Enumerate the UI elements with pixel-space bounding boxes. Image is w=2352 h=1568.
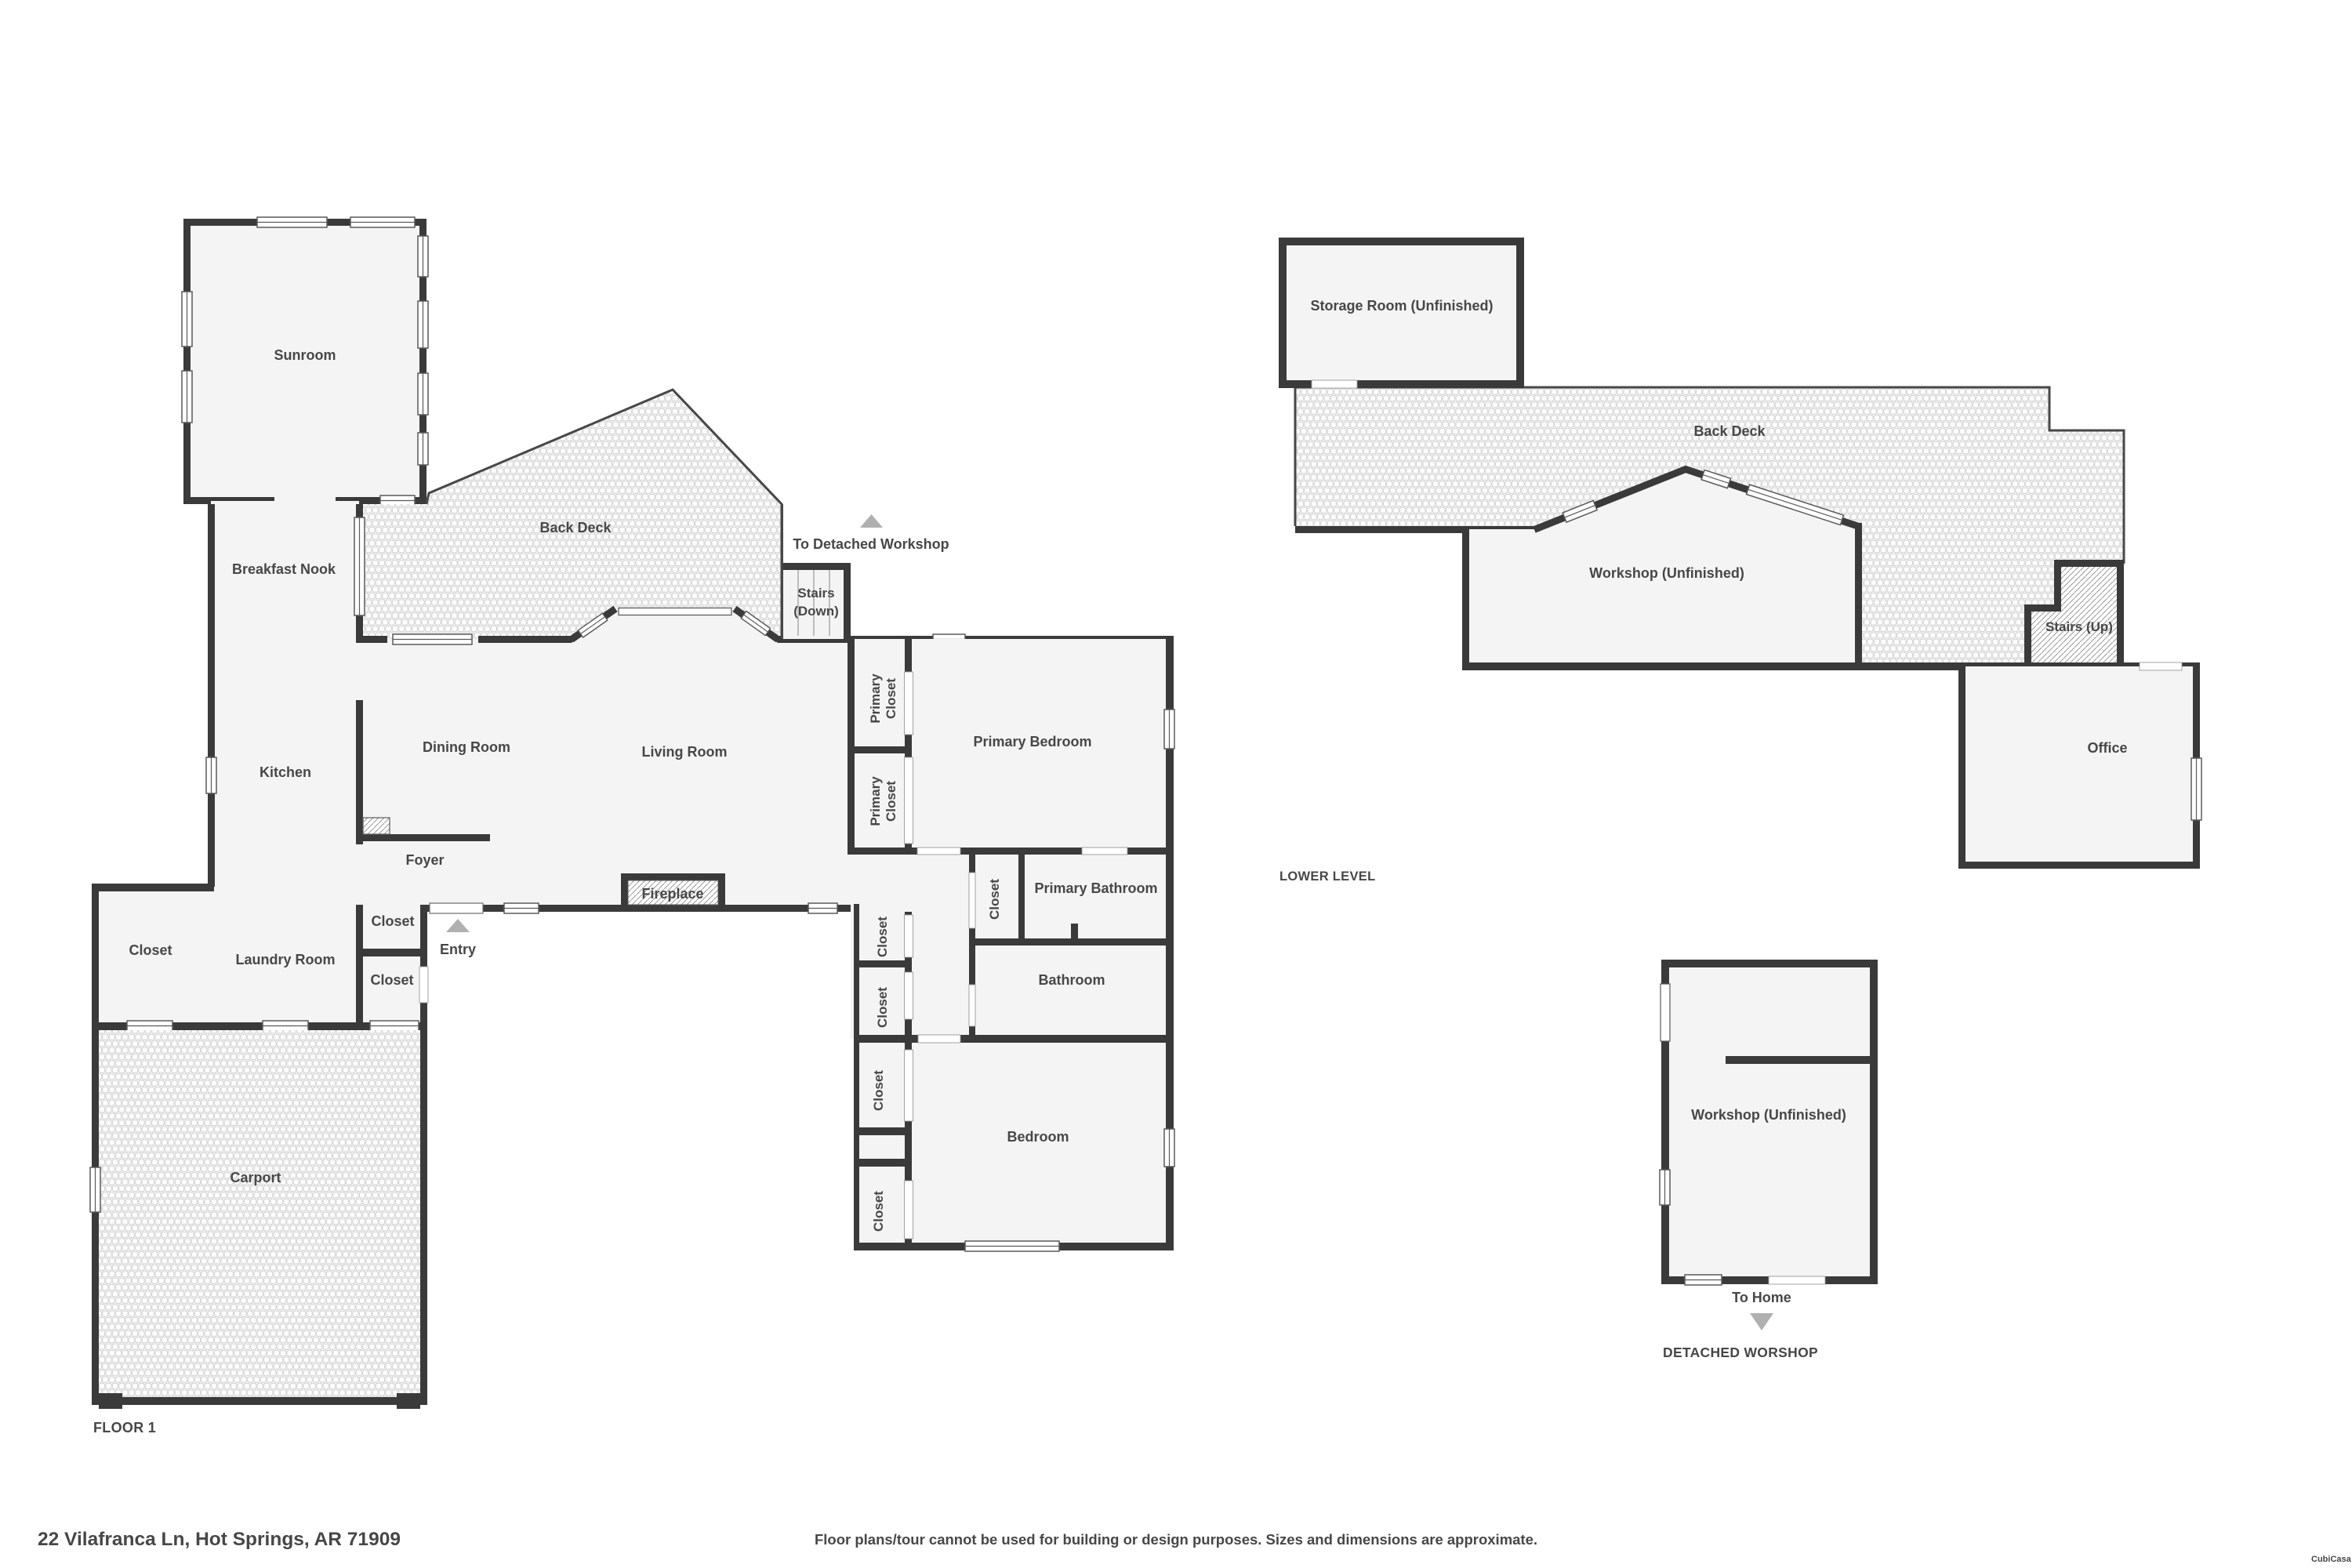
svg-text:Primary: Primary	[868, 673, 883, 724]
svg-text:Stairs (Up): Stairs (Up)	[2045, 619, 2113, 634]
svg-text:CubiCasa: CubiCasa	[2311, 1555, 2352, 1564]
svg-text:Foyer: Foyer	[405, 852, 444, 868]
svg-text:To Detached Workshop: To Detached Workshop	[793, 536, 949, 552]
svg-text:DETACHED WORSHOP: DETACHED WORSHOP	[1663, 1345, 1818, 1360]
svg-text:Back Deck: Back Deck	[1693, 423, 1766, 439]
svg-text:FLOOR 1: FLOOR 1	[93, 1420, 156, 1436]
svg-text:To Home: To Home	[1732, 1290, 1791, 1305]
svg-text:Closet: Closet	[129, 942, 172, 958]
svg-text:Closet: Closet	[875, 916, 890, 957]
svg-text:Back Deck: Back Deck	[539, 520, 612, 535]
svg-text:Closet: Closet	[987, 879, 1002, 920]
svg-text:Laundry Room: Laundry Room	[235, 952, 335, 967]
svg-text:Dining Room: Dining Room	[423, 739, 510, 755]
svg-text:22 Vilafranca Ln, Hot Springs,: 22 Vilafranca Ln, Hot Springs, AR 71909	[38, 1529, 401, 1550]
svg-text:Carport: Carport	[230, 1170, 281, 1185]
svg-text:Kitchen: Kitchen	[260, 764, 311, 780]
svg-text:Closet: Closet	[371, 913, 414, 929]
svg-text:Closet: Closet	[875, 987, 890, 1028]
svg-text:Living Room: Living Room	[642, 744, 728, 760]
svg-text:Entry: Entry	[440, 942, 476, 957]
svg-text:Stairs: Stairs	[797, 586, 834, 601]
svg-text:(Down): (Down)	[793, 604, 839, 619]
svg-text:Floor plans/tour cannot be use: Floor plans/tour cannot be used for buil…	[815, 1531, 1537, 1548]
svg-text:Closet: Closet	[884, 678, 898, 719]
svg-text:Bedroom: Bedroom	[1007, 1129, 1069, 1145]
svg-text:Closet: Closet	[884, 781, 898, 822]
svg-text:Closet: Closet	[871, 1191, 886, 1232]
svg-text:Workshop (Unfinished): Workshop (Unfinished)	[1589, 565, 1744, 581]
svg-text:Workshop (Unfinished): Workshop (Unfinished)	[1691, 1107, 1846, 1123]
svg-text:Primary Bathroom: Primary Bathroom	[1034, 880, 1157, 896]
svg-text:Bathroom: Bathroom	[1039, 972, 1105, 988]
svg-text:Breakfast Nook: Breakfast Nook	[232, 561, 336, 577]
svg-text:Primary Bedroom: Primary Bedroom	[973, 734, 1091, 750]
svg-text:Fireplace: Fireplace	[641, 886, 703, 902]
svg-text:Primary: Primary	[868, 776, 883, 826]
svg-text:Closet: Closet	[871, 1070, 886, 1111]
svg-text:Sunroom: Sunroom	[274, 347, 336, 363]
svg-text:Closet: Closet	[370, 972, 413, 988]
svg-text:Office: Office	[2087, 740, 2127, 756]
svg-text:LOWER LEVEL: LOWER LEVEL	[1279, 869, 1375, 884]
svg-text:Storage Room (Unfinished): Storage Room (Unfinished)	[1311, 298, 1494, 314]
